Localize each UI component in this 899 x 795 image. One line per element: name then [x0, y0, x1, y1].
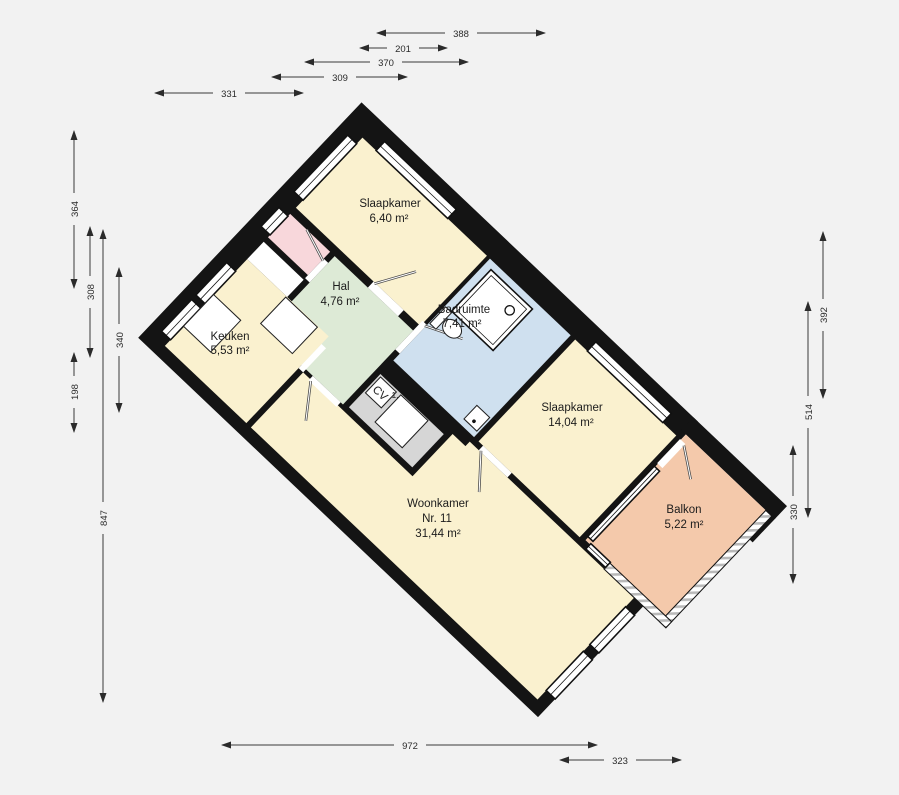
floorplan-canvas: CV Slaapkamer 6,40 m² Hal 4,76 m² Badrui…	[0, 0, 899, 795]
woonkamer-area: 31,44 m²	[415, 528, 461, 540]
svg-text:392: 392	[819, 307, 830, 323]
svg-text:847: 847	[99, 510, 110, 526]
woonkamer-number: Nr. 11	[422, 513, 452, 525]
svg-text:340: 340	[115, 332, 126, 348]
svg-text:972: 972	[402, 741, 418, 752]
hal-area: 4,76 m²	[321, 296, 360, 308]
badruimte-area: 7,41 m²	[443, 318, 482, 330]
woonkamer-name: Woonkamer	[407, 498, 469, 510]
cv-area: 1,	[391, 390, 398, 400]
slaapkamer-1-name: Slaapkamer	[359, 198, 421, 210]
keuken-area: 5,53 m²	[211, 345, 250, 357]
slaapkamer-1-area: 6,40 m²	[370, 213, 409, 225]
keuken-name: Keuken	[210, 331, 249, 343]
svg-text:330: 330	[789, 504, 800, 520]
svg-text:370: 370	[378, 58, 394, 69]
badruimte-name: Badruimte	[438, 304, 490, 316]
svg-text:309: 309	[332, 73, 348, 84]
svg-text:201: 201	[395, 44, 411, 55]
balkon-name: Balkon	[666, 504, 701, 516]
slaapkamer-2-name: Slaapkamer	[541, 402, 603, 414]
svg-text:514: 514	[804, 404, 815, 420]
svg-text:388: 388	[453, 29, 469, 40]
svg-text:198: 198	[70, 384, 81, 400]
hal-name: Hal	[332, 281, 349, 293]
floorplan-svg: CV Slaapkamer 6,40 m² Hal 4,76 m² Badrui…	[0, 0, 899, 795]
slaapkamer-2-area: 14,04 m²	[548, 417, 594, 429]
svg-text:331: 331	[221, 89, 237, 100]
svg-text:323: 323	[612, 756, 628, 767]
svg-text:308: 308	[86, 284, 97, 300]
balkon-area: 5,22 m²	[665, 519, 704, 531]
svg-text:364: 364	[70, 201, 81, 217]
